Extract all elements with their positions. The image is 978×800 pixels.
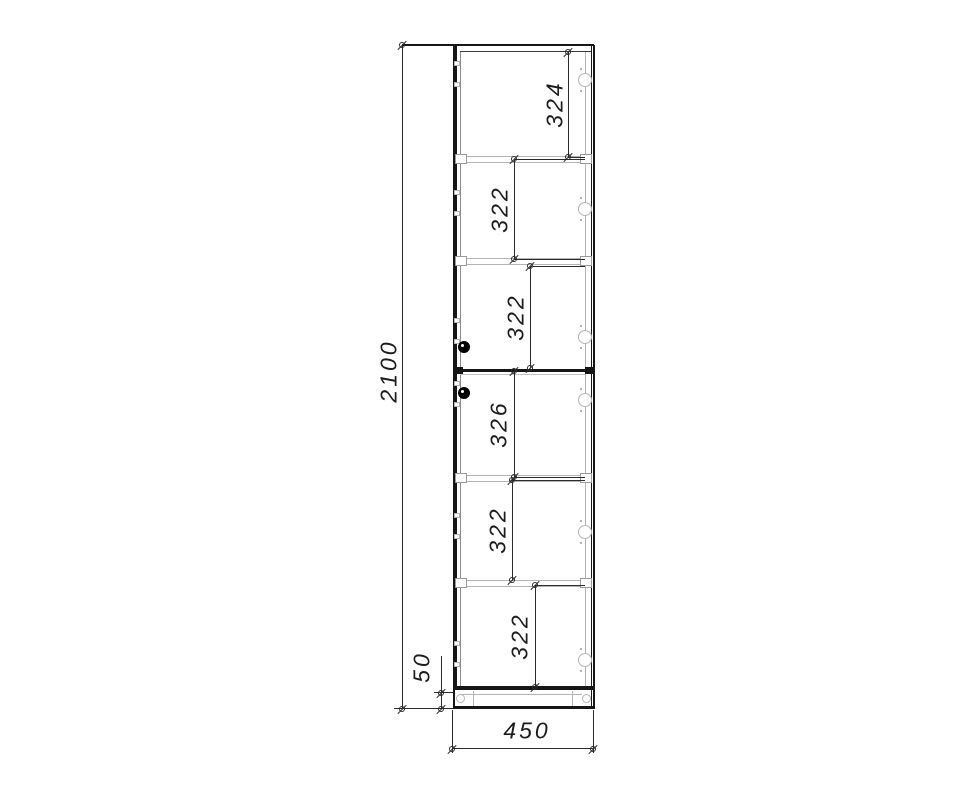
hinge-cup-icon (578, 525, 592, 539)
cabinet-top-edge (402, 44, 594, 46)
hinge-plate-mark (454, 381, 460, 386)
door-knob-highlight (461, 390, 464, 393)
hinge-plate-mark (454, 402, 460, 407)
hinge-cup-icon (578, 330, 592, 344)
plinth-left-foot-icon (456, 694, 465, 703)
hinge-plate-mark (454, 641, 460, 646)
width-dimension-label: 450 (503, 720, 550, 743)
door-knob-icon (458, 341, 470, 353)
shelf-left-fitting (455, 256, 467, 266)
dimension-leader-line (514, 159, 585, 160)
section-dimension-label: 322 (489, 185, 512, 232)
door-knob-icon (458, 387, 470, 399)
shelf-left-fitting (455, 154, 467, 164)
section-dimension-label: 324 (544, 80, 567, 127)
hinge-screw-dot (580, 520, 583, 523)
cad-drawing-canvas: 324322322326322322 2100 50 450 (0, 0, 978, 800)
dimension-leader-line (514, 477, 585, 478)
shelf-right-fitting (580, 578, 592, 588)
dimension-leader-line (514, 259, 585, 260)
plinth-right-foot-line (572, 691, 573, 706)
hinge-plate-mark (454, 318, 460, 323)
overall-height-dimension-line (402, 45, 403, 709)
hinge-cup-icon (578, 653, 592, 667)
plinth-left-edge (453, 690, 455, 708)
door-split-left-cap (453, 367, 463, 374)
section-dimension-label: 326 (488, 400, 511, 447)
hinge-cup-icon (578, 393, 592, 407)
cabinet-right-edge (593, 45, 595, 708)
shelf-right-fitting (580, 256, 592, 266)
plinth-right-foot-icon (582, 694, 591, 703)
top-panel-underside-line (460, 51, 591, 52)
dimension-leader-line (530, 266, 585, 267)
hinge-plate-mark (454, 61, 460, 66)
hinge-screw-dot (580, 197, 583, 200)
dimension-leader-line (535, 585, 585, 586)
hinge-screw-dot (580, 388, 583, 391)
hinge-screw-dot (580, 219, 583, 222)
plinth-height-dimension-label: 50 (411, 651, 434, 683)
shelf-line-top (461, 580, 585, 581)
plinth-left-foot-line (473, 691, 474, 706)
hinge-plate-mark (454, 190, 460, 195)
hinge-screw-dot (580, 670, 583, 673)
plinth-dimension-line (441, 656, 442, 709)
overall-height-dimension-label: 2100 (378, 339, 401, 402)
shelf-left-fitting (455, 578, 467, 588)
dimension-leader-line (512, 480, 585, 481)
hinge-plate-mark (454, 211, 460, 216)
section-dimension-line (535, 585, 536, 687)
cabinet-bottom-panel (453, 686, 594, 690)
section-dimension-line (530, 266, 531, 368)
plinth-inner-line (462, 694, 582, 695)
door-split-right-cap (585, 367, 594, 374)
hinge-screw-dot (580, 648, 583, 651)
hinge-plate-mark (454, 513, 460, 518)
shelf-line-bottom (461, 586, 585, 587)
section-dimension-line (514, 159, 515, 259)
shelf-line-top (461, 475, 585, 476)
width-dimension-line (452, 748, 593, 749)
section-dimension-label: 322 (505, 293, 528, 340)
hinge-plate-mark (454, 662, 460, 667)
hinge-screw-dot (580, 90, 583, 93)
shelf-left-fitting (455, 473, 467, 483)
hinge-screw-dot (580, 542, 583, 545)
hinge-cup-icon (578, 202, 592, 216)
plinth-bottom-edge (453, 706, 595, 709)
cabinet-right-edge-inner-line (591, 45, 592, 708)
shelf-line-bottom (461, 264, 585, 265)
section-dimension-label: 322 (487, 506, 510, 553)
hinge-screw-dot (580, 410, 583, 413)
section-dimension-label: 322 (509, 612, 532, 659)
door-knob-highlight (461, 344, 464, 347)
hinge-screw-dot (580, 68, 583, 71)
hinge-screw-dot (580, 325, 583, 328)
shelf-right-fitting (580, 473, 592, 483)
hinge-screw-dot (580, 347, 583, 350)
shelf-line-bottom (461, 162, 585, 163)
hinge-plate-mark (454, 82, 460, 87)
plinth-right-edge (593, 690, 595, 708)
lower-door-top-line (460, 374, 585, 375)
hinge-cup-icon (578, 73, 592, 87)
door-split-line (453, 369, 594, 372)
section-dimension-line (568, 52, 569, 157)
section-dimension-line (512, 480, 513, 580)
section-dimension-line (514, 371, 515, 477)
shelf-line-bottom (461, 481, 585, 482)
hinge-plate-mark (454, 534, 460, 539)
